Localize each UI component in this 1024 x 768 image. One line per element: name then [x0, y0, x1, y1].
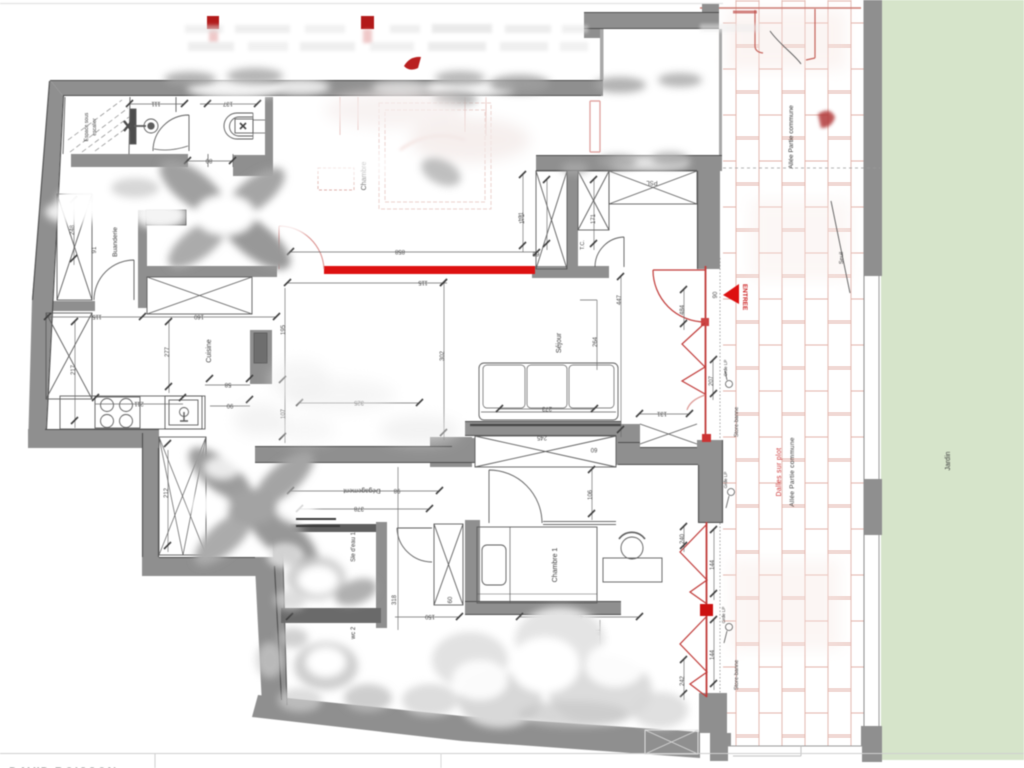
svg-text:Séjour: Séjour — [556, 332, 563, 353]
svg-text:Allée Partie commune: Allée Partie commune — [789, 437, 796, 507]
svg-text:wc 2: wc 2 — [351, 626, 357, 640]
svg-text:264: 264 — [593, 336, 599, 347]
svg-text:240: 240 — [680, 533, 686, 544]
svg-text:212: 212 — [164, 487, 170, 498]
svg-text:248: 248 — [70, 224, 76, 235]
svg-text:171: 171 — [520, 213, 526, 224]
svg-text:90: 90 — [713, 291, 719, 298]
svg-text:277: 277 — [165, 346, 171, 357]
svg-text:Espace sous: Espace sous — [84, 112, 90, 141]
svg-text:Buanderie: Buanderie — [112, 227, 119, 257]
svg-text:318: 318 — [392, 594, 398, 605]
svg-text:111: 111 — [151, 100, 161, 106]
svg-text:T.C.: T.C. — [580, 240, 586, 250]
svg-text:144: 144 — [710, 649, 716, 660]
svg-text:Jardin: Jardin — [945, 451, 952, 470]
svg-text:217: 217 — [71, 364, 77, 375]
svg-text:115: 115 — [92, 313, 102, 319]
svg-text:90: 90 — [226, 402, 233, 408]
svg-text:137: 137 — [222, 100, 233, 106]
svg-text:Grde LP: Grde LP — [721, 607, 726, 624]
svg-text:302: 302 — [440, 350, 446, 361]
svg-text:Seuil: Seuil — [839, 252, 845, 264]
svg-text:242: 242 — [680, 675, 686, 686]
svg-text:378: 378 — [353, 505, 364, 511]
svg-text:Sle d'eau 1: Sle d'eau 1 — [351, 531, 357, 561]
svg-text:80: 80 — [205, 157, 212, 163]
svg-text:858: 858 — [394, 248, 405, 254]
svg-text:115: 115 — [418, 279, 428, 285]
svg-text:Cuisine: Cuisine — [206, 339, 213, 362]
svg-text:195: 195 — [281, 324, 287, 335]
svg-text:60: 60 — [590, 446, 597, 452]
svg-text:98: 98 — [393, 487, 400, 493]
svg-text:60: 60 — [532, 250, 539, 256]
svg-text:PSL: PSL — [646, 179, 658, 185]
svg-text:ENTREE: ENTREE — [741, 284, 748, 311]
svg-text:escalier: escalier — [92, 118, 98, 136]
svg-text:207: 207 — [709, 375, 715, 386]
svg-text:245: 245 — [536, 434, 547, 440]
svg-text:144: 144 — [710, 559, 716, 570]
svg-text:Dalles sur plot: Dalles sur plot — [776, 448, 783, 497]
svg-text:Grde LP: Grde LP — [723, 472, 728, 489]
svg-text:58: 58 — [224, 381, 231, 387]
svg-text:Store-banne: Store-banne — [734, 660, 740, 690]
svg-text:484: 484 — [680, 304, 686, 315]
svg-text:Allée Partie commune: Allée Partie commune — [788, 105, 795, 169]
svg-text:273: 273 — [541, 405, 552, 411]
svg-text:Store-banne: Store-banne — [734, 407, 740, 437]
svg-text:Chambre 1: Chambre 1 — [552, 548, 559, 583]
svg-text:447: 447 — [617, 294, 623, 305]
svg-text:171: 171 — [591, 213, 597, 224]
svg-text:150: 150 — [424, 613, 435, 619]
svg-text:106: 106 — [588, 489, 594, 500]
svg-text:211: 211 — [134, 400, 144, 406]
svg-text:Dégagement: Dégagement — [343, 487, 380, 494]
svg-text:91: 91 — [92, 246, 98, 253]
svg-text:Grde LP: Grde LP — [723, 360, 728, 377]
svg-text:160: 160 — [193, 313, 204, 319]
svg-text:60: 60 — [448, 596, 454, 603]
svg-text:131: 131 — [656, 410, 667, 416]
